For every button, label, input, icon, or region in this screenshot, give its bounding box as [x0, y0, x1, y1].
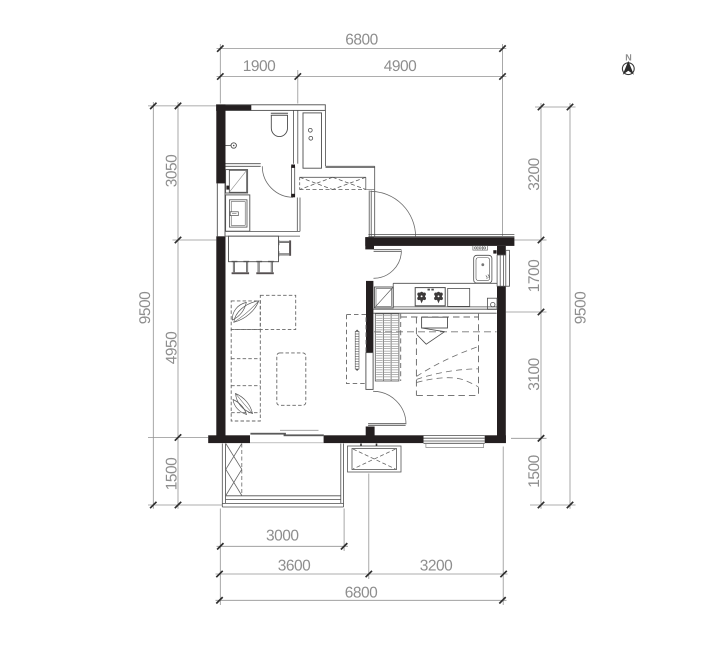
svg-text:3000: 3000	[266, 528, 299, 545]
svg-text:3600: 3600	[278, 558, 311, 575]
svg-text:9500: 9500	[573, 291, 590, 324]
svg-text:6800: 6800	[345, 32, 378, 49]
svg-text:N: N	[625, 52, 632, 62]
svg-text:4900: 4900	[384, 58, 417, 75]
svg-text:4950: 4950	[164, 331, 181, 364]
svg-text:1900: 1900	[243, 58, 276, 75]
svg-text:6800: 6800	[345, 584, 378, 601]
svg-text:1500: 1500	[164, 457, 181, 490]
svg-text:3200: 3200	[420, 558, 453, 575]
svg-text:3050: 3050	[164, 154, 181, 187]
svg-text:3200: 3200	[526, 157, 543, 190]
svg-text:1700: 1700	[526, 259, 543, 292]
svg-text:1500: 1500	[526, 454, 543, 487]
svg-text:3100: 3100	[526, 357, 543, 390]
svg-text:9500: 9500	[137, 291, 154, 324]
